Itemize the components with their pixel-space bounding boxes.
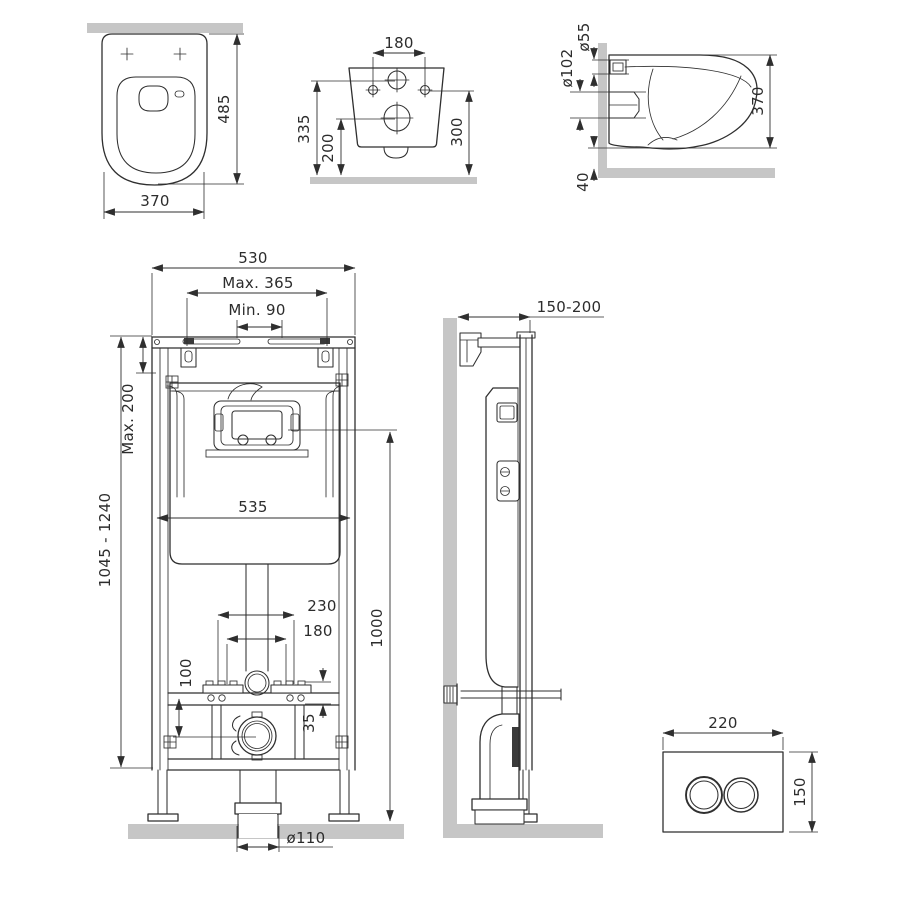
- dim-height-1000-label: 1000: [368, 608, 386, 647]
- floor-strip: [443, 824, 603, 838]
- floor-strip: [598, 168, 775, 178]
- dim-top-height-label: 485: [215, 94, 233, 124]
- floor-strip: [310, 177, 477, 184]
- dim-span-180-label: 180: [303, 622, 333, 640]
- dim-outlet-diameter-label: ø102: [558, 48, 576, 87]
- dim-depth-range-label: 150-200: [537, 298, 602, 316]
- dim-top-width-label: 370: [140, 192, 170, 210]
- dim-offset-35-label: 35: [300, 713, 318, 733]
- dim-hole-spacing-label: 180: [384, 34, 414, 52]
- dim-max-top-label: Max. 200: [119, 383, 137, 455]
- slot-bolt-left: [184, 338, 194, 344]
- dim-max-span-label: Max. 365: [222, 274, 294, 292]
- dim-rear-300-label: 300: [448, 117, 466, 147]
- dim-frame-width-label: 530: [238, 249, 268, 267]
- dim-floor-gap-label: 40: [574, 172, 592, 192]
- dim-cistern-width-label: 535: [238, 498, 268, 516]
- wall-strip: [598, 43, 607, 168]
- dim-height-range-label: 1045 - 1240: [96, 493, 114, 588]
- dim-plate-height-label: 150: [791, 777, 809, 807]
- dim-inlet-diameter-label: ø55: [575, 22, 593, 51]
- dim-drain-diameter-label: ø110: [286, 829, 325, 847]
- wall-strip: [443, 318, 457, 824]
- screw-bracket: [497, 461, 519, 501]
- wall-strip: [87, 23, 243, 33]
- dim-min-span-label: Min. 90: [228, 301, 285, 319]
- dim-rear-200-label: 200: [319, 133, 337, 163]
- technical-drawing-sheet: 485 370 180 335 200 300: [0, 0, 900, 900]
- installation-diagram: 485 370 180 335 200 300: [0, 0, 900, 900]
- dim-side-height-label: 370: [749, 86, 767, 116]
- water-connection: [245, 671, 269, 695]
- dim-rear-335-label: 335: [295, 114, 313, 144]
- dim-plate-width-label: 220: [708, 714, 738, 732]
- dim-span-230-label: 230: [307, 597, 337, 615]
- dim-offset-100-label: 100: [177, 658, 195, 688]
- slot-bolt-right: [320, 338, 330, 344]
